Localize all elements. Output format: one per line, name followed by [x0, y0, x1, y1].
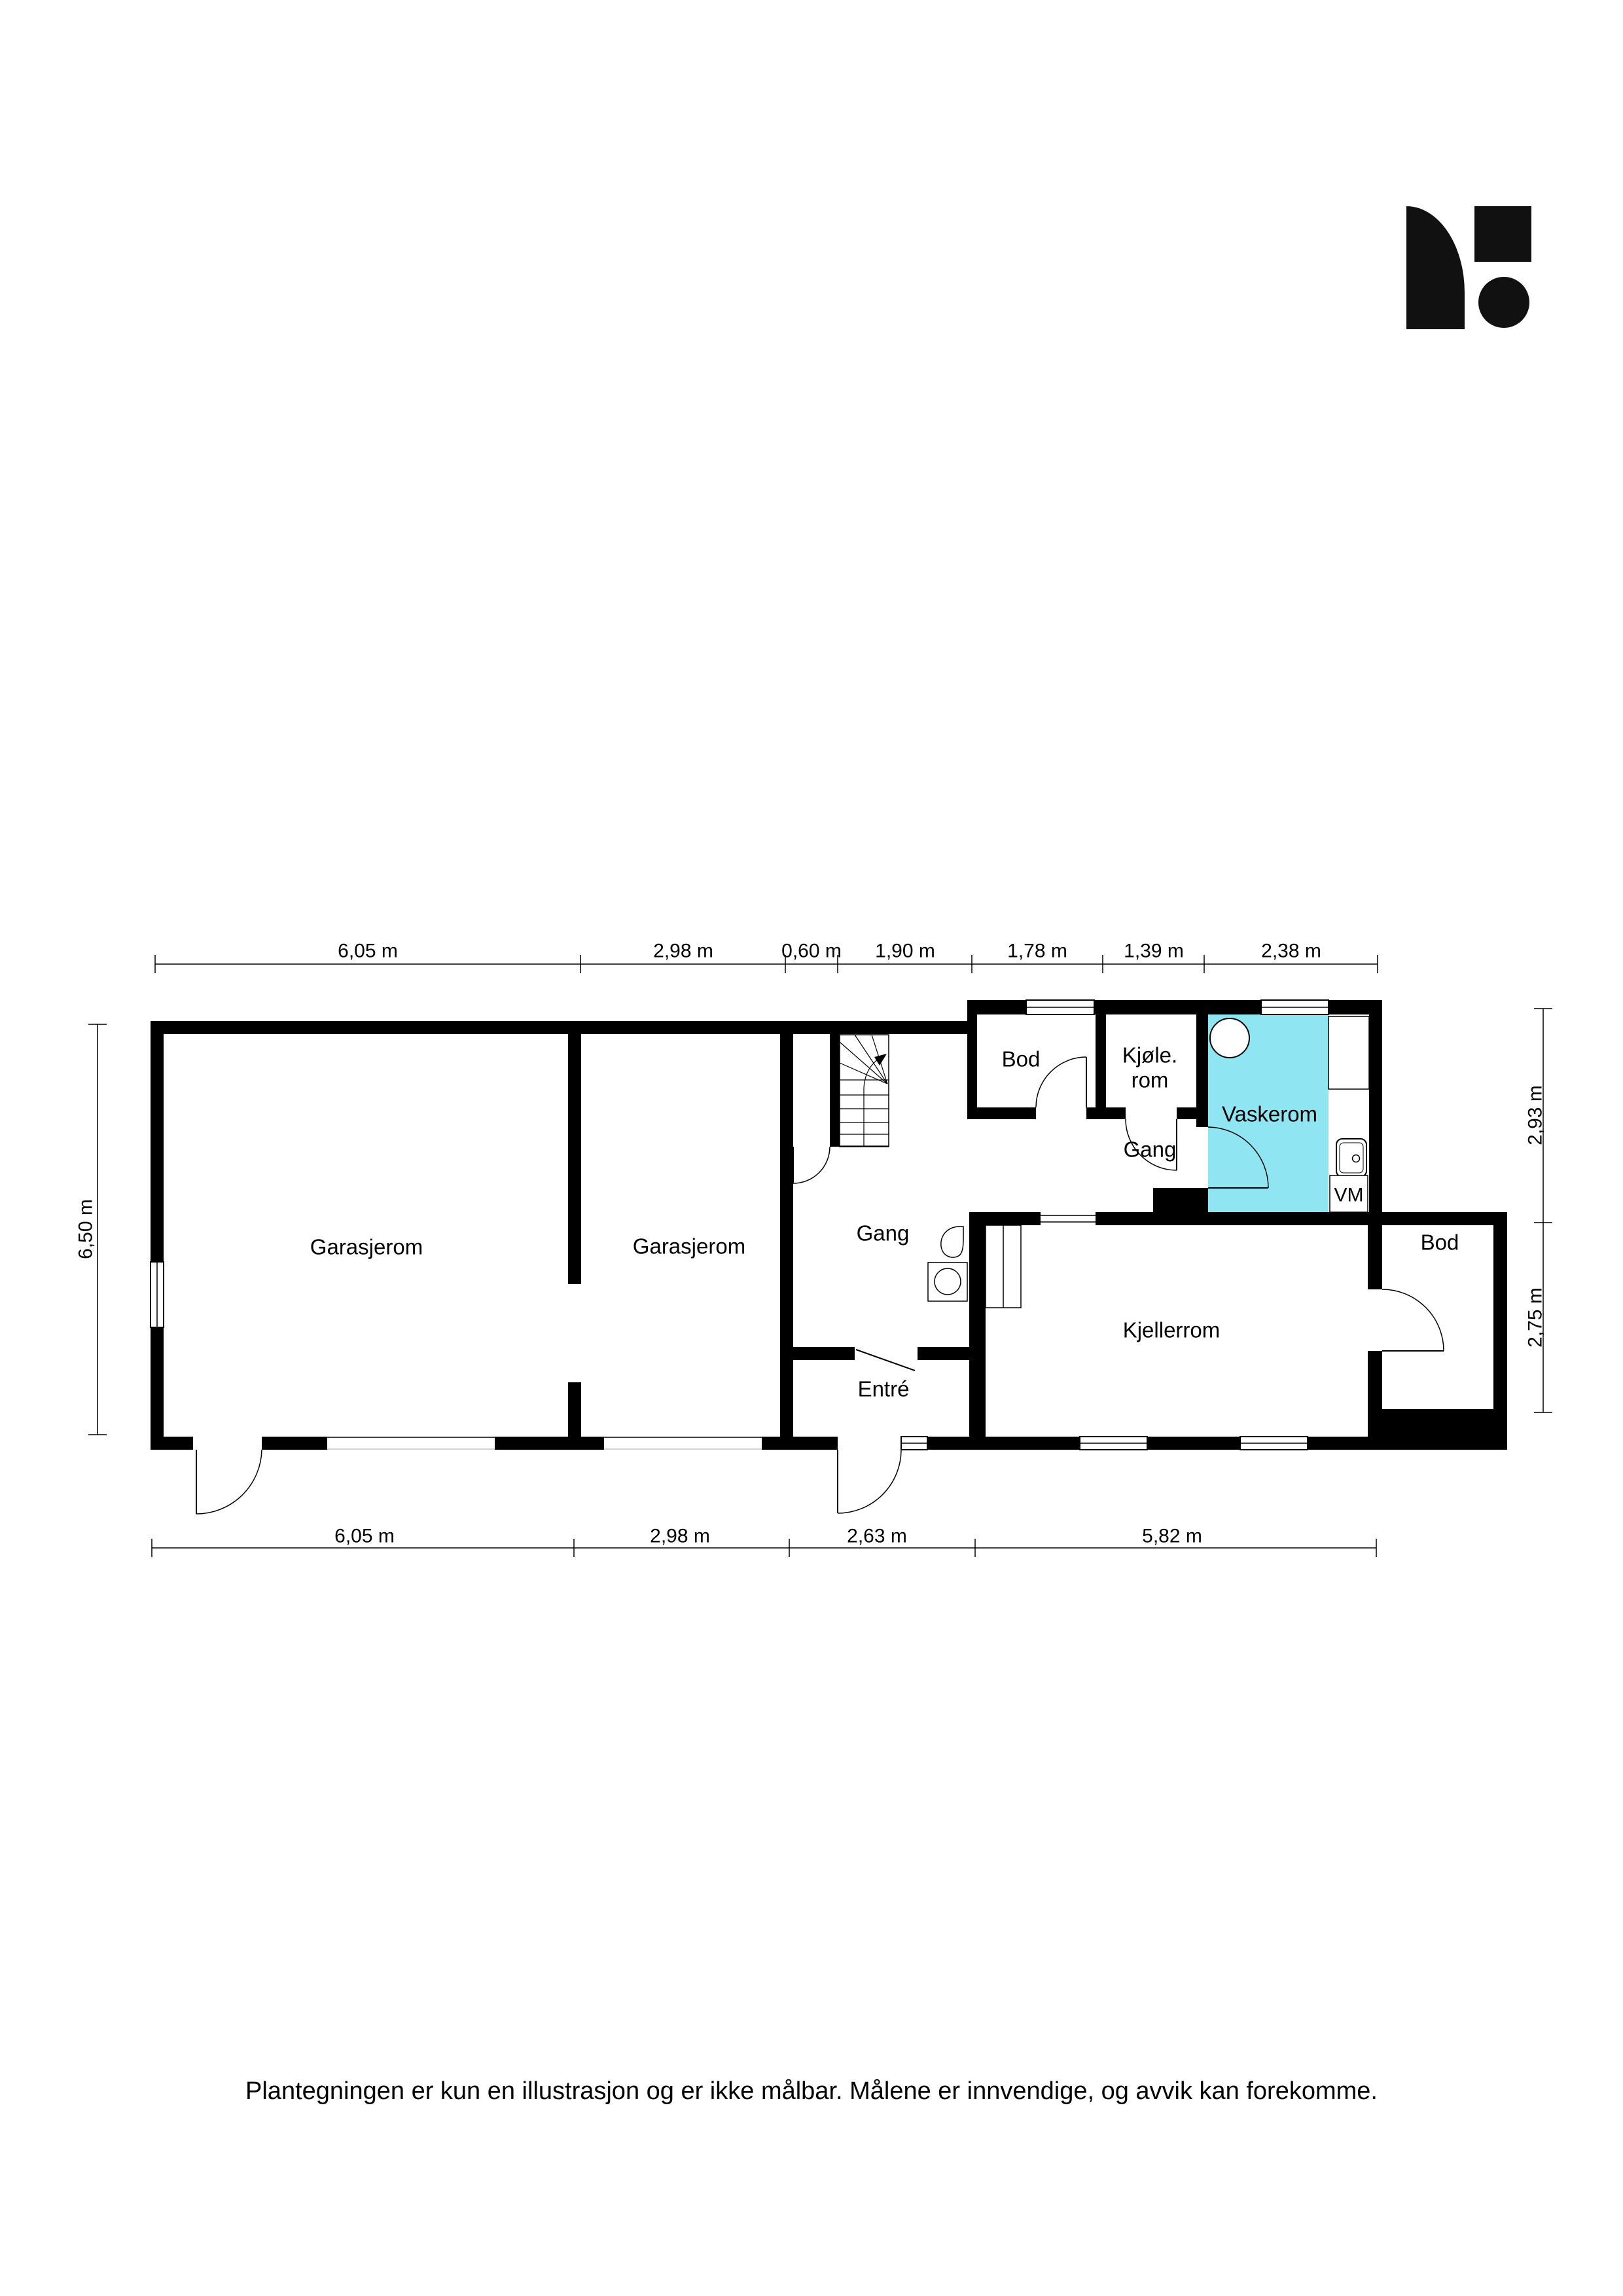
- door-opening: [1368, 1289, 1382, 1351]
- room-label: Gang: [857, 1221, 910, 1246]
- floorplan-page: GarasjeromGarasjeromGangEntréBodKjøle.ro…: [0, 0, 1623, 2296]
- door-opening: [1196, 1127, 1208, 1188]
- room-label: Kjøle.: [1122, 1043, 1177, 1067]
- dimension-label: 1,78 m: [1007, 941, 1067, 962]
- floor-plan: GarasjeromGarasjeromGangEntréBodKjøle.ro…: [0, 0, 1623, 2296]
- wall: [830, 1034, 840, 1147]
- dimension-label: 6,05 m: [338, 941, 398, 962]
- door-swing-arc: [196, 1450, 262, 1514]
- door-opening: [1036, 1107, 1086, 1119]
- dimension-label: 2,98 m: [650, 1526, 710, 1547]
- wall: [1493, 1212, 1507, 1409]
- water-heater: [1210, 1018, 1249, 1058]
- room-label: Gang: [1124, 1138, 1177, 1162]
- room-label: Bod: [1421, 1230, 1459, 1255]
- dimension-label: 1,39 m: [1124, 941, 1184, 962]
- dimension-label: 2,93 m: [1525, 1085, 1546, 1145]
- laundry-counter: [1329, 1016, 1369, 1089]
- door-swing-arc: [1382, 1289, 1444, 1351]
- door-swing-arc: [838, 1450, 901, 1513]
- dimension-label: 0,60 m: [781, 941, 842, 962]
- dimension-label: 2,75 m: [1525, 1287, 1546, 1348]
- corner-sink: [941, 1227, 963, 1257]
- door-swing-arc: [793, 1147, 830, 1183]
- dimension-label: 5,82 m: [1142, 1526, 1202, 1547]
- door-opening: [855, 1347, 918, 1360]
- wall: [780, 1034, 793, 1437]
- room-label: rom: [1132, 1068, 1169, 1092]
- room-label: Entré: [858, 1377, 910, 1401]
- door-swing-arc: [1036, 1057, 1086, 1107]
- passage-opening: [1041, 1212, 1096, 1225]
- wall: [1096, 1014, 1106, 1119]
- door-opening: [1126, 1107, 1177, 1119]
- sink-faucet: [1353, 1155, 1360, 1162]
- door-opening: [193, 1437, 262, 1450]
- room-label: Garasjerom: [633, 1234, 745, 1259]
- wall: [969, 1225, 986, 1437]
- wall: [151, 1021, 164, 1450]
- dimension-label: 6,05 m: [334, 1526, 395, 1547]
- wall: [151, 1021, 977, 1034]
- dimension-label: 2,98 m: [653, 941, 713, 962]
- wall: [568, 1382, 581, 1437]
- disclaimer-text: Plantegningen er kun en illustrasjon og …: [0, 2077, 1623, 2106]
- room-label: VM: [1334, 1185, 1364, 1206]
- room-label: Garasjerom: [310, 1235, 423, 1259]
- floor-drain: [935, 1268, 961, 1295]
- wall: [568, 1034, 581, 1284]
- garage-door-opening: [327, 1437, 495, 1450]
- dimension-label: 6,50 m: [75, 1199, 97, 1259]
- room-label: Bod: [1002, 1047, 1041, 1071]
- dimension-label: 2,63 m: [847, 1526, 907, 1547]
- dimension-label: 2,38 m: [1261, 941, 1321, 962]
- door-opening: [838, 1437, 901, 1450]
- dimension-label: 1,90 m: [875, 941, 935, 962]
- garage-door-opening: [604, 1437, 762, 1450]
- wall: [967, 1000, 977, 1119]
- wall: [1368, 1409, 1507, 1450]
- wall: [1369, 1000, 1382, 1225]
- room-label: Vaskerom: [1222, 1102, 1317, 1126]
- wall: [1153, 1188, 1208, 1212]
- room-label: Kjellerrom: [1123, 1318, 1221, 1342]
